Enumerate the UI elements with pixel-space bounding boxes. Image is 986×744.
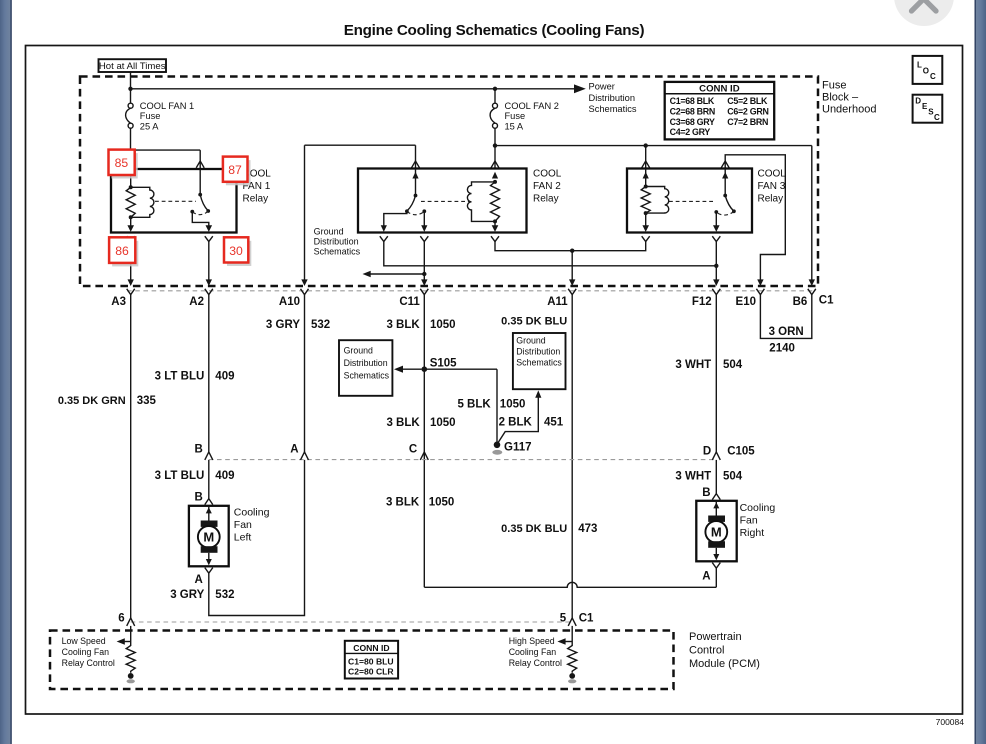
svg-text:5 BLK: 5 BLK bbox=[457, 399, 491, 411]
svg-text:Distribution: Distribution bbox=[589, 93, 636, 103]
svg-text:409: 409 bbox=[215, 470, 234, 482]
svg-text:2 BLK: 2 BLK bbox=[499, 417, 533, 429]
svg-text:C1=80 BLU: C1=80 BLU bbox=[348, 656, 394, 666]
svg-text:3 BLK: 3 BLK bbox=[386, 417, 420, 429]
svg-text:Left: Left bbox=[234, 532, 252, 544]
svg-text:FAN 3: FAN 3 bbox=[758, 181, 786, 192]
svg-text:Ground: Ground bbox=[516, 336, 545, 346]
svg-text:C1: C1 bbox=[579, 613, 594, 625]
svg-text:Fan: Fan bbox=[740, 515, 758, 527]
svg-text:532: 532 bbox=[215, 589, 234, 601]
svg-text:Hot at All Times: Hot at All Times bbox=[99, 61, 166, 72]
svg-text:1050: 1050 bbox=[430, 319, 456, 331]
svg-text:85: 85 bbox=[115, 156, 129, 170]
svg-text:409: 409 bbox=[215, 371, 234, 383]
svg-text:A10: A10 bbox=[279, 296, 300, 308]
svg-text:Cooling: Cooling bbox=[740, 502, 776, 514]
svg-text:A: A bbox=[290, 444, 298, 456]
svg-text:B: B bbox=[194, 444, 202, 456]
svg-text:30: 30 bbox=[229, 244, 243, 258]
svg-text:A3: A3 bbox=[111, 296, 126, 308]
svg-text:Relay Control: Relay Control bbox=[62, 658, 115, 668]
svg-text:3 WHT: 3 WHT bbox=[675, 471, 711, 483]
svg-text:FAN 2: FAN 2 bbox=[533, 181, 561, 192]
svg-text:15 A: 15 A bbox=[505, 121, 524, 131]
svg-text:Fuse: Fuse bbox=[822, 80, 846, 92]
svg-text:Low Speed: Low Speed bbox=[62, 636, 106, 646]
svg-text:Engine Cooling Schematics (Coo: Engine Cooling Schematics (Cooling Fans) bbox=[344, 22, 645, 39]
svg-text:M: M bbox=[203, 530, 214, 545]
svg-text:O: O bbox=[923, 66, 929, 75]
svg-text:25 A: 25 A bbox=[140, 121, 159, 131]
svg-text:Schematics: Schematics bbox=[516, 358, 562, 368]
svg-text:L: L bbox=[917, 61, 922, 70]
svg-text:C2=68 BRN: C2=68 BRN bbox=[670, 107, 715, 117]
svg-text:Fan: Fan bbox=[234, 519, 252, 531]
svg-text:Fuse: Fuse bbox=[140, 111, 161, 121]
svg-text:Cooling Fan: Cooling Fan bbox=[509, 647, 557, 657]
svg-text:COOL: COOL bbox=[533, 169, 562, 180]
svg-text:C3=68 GRY: C3=68 GRY bbox=[670, 117, 715, 127]
svg-text:D: D bbox=[703, 446, 711, 458]
svg-text:C: C bbox=[934, 113, 940, 122]
svg-text:700084: 700084 bbox=[936, 717, 965, 727]
svg-text:C105: C105 bbox=[727, 446, 755, 458]
svg-text:504: 504 bbox=[723, 359, 743, 371]
svg-text:3 GRY: 3 GRY bbox=[266, 319, 300, 331]
svg-text:D: D bbox=[915, 97, 921, 106]
svg-text:0.35 DK BLU: 0.35 DK BLU bbox=[501, 316, 567, 328]
svg-text:Relay: Relay bbox=[758, 194, 784, 205]
svg-text:C7=2 BRN: C7=2 BRN bbox=[727, 117, 768, 127]
svg-text:Relay: Relay bbox=[243, 194, 269, 205]
svg-text:E10: E10 bbox=[736, 296, 756, 308]
svg-text:Relay: Relay bbox=[533, 194, 559, 205]
svg-text:C11: C11 bbox=[399, 296, 420, 308]
svg-text:A: A bbox=[702, 571, 710, 583]
svg-text:COOL: COOL bbox=[758, 169, 787, 180]
svg-text:3 GRY: 3 GRY bbox=[170, 589, 204, 601]
svg-text:504: 504 bbox=[723, 471, 743, 483]
svg-text:87: 87 bbox=[228, 163, 242, 177]
svg-text:M: M bbox=[711, 525, 722, 540]
svg-text:G117: G117 bbox=[504, 442, 532, 454]
svg-text:Underhood: Underhood bbox=[822, 104, 876, 116]
svg-text:C: C bbox=[409, 444, 417, 456]
svg-text:Distribution: Distribution bbox=[516, 347, 560, 357]
svg-text:Cooling: Cooling bbox=[234, 507, 270, 519]
svg-text:A: A bbox=[194, 574, 202, 586]
svg-text:C6=2 GRN: C6=2 GRN bbox=[727, 107, 768, 117]
svg-text:C2=80 CLR: C2=80 CLR bbox=[348, 667, 394, 677]
svg-text:A11: A11 bbox=[547, 296, 568, 308]
svg-text:1050: 1050 bbox=[429, 497, 455, 509]
svg-text:Fuse: Fuse bbox=[505, 111, 526, 121]
svg-text:C1: C1 bbox=[819, 295, 834, 307]
svg-text:C5=2 BLK: C5=2 BLK bbox=[727, 96, 768, 106]
svg-text:86: 86 bbox=[115, 244, 129, 258]
svg-text:335: 335 bbox=[137, 395, 157, 407]
svg-text:Schematics: Schematics bbox=[344, 371, 390, 381]
svg-text:CONN ID: CONN ID bbox=[353, 643, 389, 653]
svg-text:B6: B6 bbox=[793, 296, 808, 308]
svg-text:Module (PCM): Module (PCM) bbox=[689, 658, 760, 670]
svg-text:3 WHT: 3 WHT bbox=[675, 359, 711, 371]
svg-text:B: B bbox=[194, 492, 202, 504]
svg-text:Schematics: Schematics bbox=[589, 104, 637, 114]
svg-text:B: B bbox=[702, 487, 710, 499]
svg-text:High Speed: High Speed bbox=[509, 636, 555, 646]
svg-text:A2: A2 bbox=[189, 296, 204, 308]
svg-text:0.35 DK BLU: 0.35 DK BLU bbox=[501, 523, 567, 535]
svg-text:COOL FAN 2: COOL FAN 2 bbox=[505, 101, 559, 111]
svg-text:1050: 1050 bbox=[430, 417, 456, 429]
svg-text:Ground: Ground bbox=[344, 346, 373, 356]
svg-text:Right: Right bbox=[740, 527, 765, 539]
svg-text:C: C bbox=[930, 72, 936, 81]
svg-text:Relay Control: Relay Control bbox=[509, 658, 562, 668]
svg-text:C4=2 GRY: C4=2 GRY bbox=[670, 127, 711, 137]
svg-text:C1=68 BLK: C1=68 BLK bbox=[670, 96, 715, 106]
svg-text:5: 5 bbox=[560, 613, 567, 625]
svg-text:1050: 1050 bbox=[500, 399, 526, 411]
svg-text:0.35 DK GRN: 0.35 DK GRN bbox=[58, 395, 126, 407]
svg-text:Schematics: Schematics bbox=[314, 247, 361, 257]
svg-text:F12: F12 bbox=[692, 296, 712, 308]
svg-text:3 BLK: 3 BLK bbox=[386, 497, 420, 509]
svg-text:Distribution: Distribution bbox=[344, 358, 388, 368]
svg-text:Ground: Ground bbox=[314, 227, 344, 237]
svg-text:473: 473 bbox=[578, 523, 597, 535]
svg-text:3 BLK: 3 BLK bbox=[386, 319, 420, 331]
svg-text:2140: 2140 bbox=[769, 343, 795, 355]
svg-text:451: 451 bbox=[544, 417, 564, 429]
svg-text:Cooling Fan: Cooling Fan bbox=[62, 647, 110, 657]
svg-text:S105: S105 bbox=[430, 358, 457, 370]
svg-text:Control: Control bbox=[689, 644, 724, 656]
svg-text:3 LT BLU: 3 LT BLU bbox=[155, 470, 205, 482]
svg-text:Power: Power bbox=[589, 82, 615, 92]
svg-text:Powertrain: Powertrain bbox=[689, 631, 742, 643]
svg-text:E: E bbox=[922, 102, 928, 111]
svg-text:Block –: Block – bbox=[822, 92, 859, 104]
svg-text:Distribution: Distribution bbox=[314, 237, 359, 247]
svg-text:3 LT BLU: 3 LT BLU bbox=[155, 371, 205, 383]
svg-text:COOL FAN 1: COOL FAN 1 bbox=[140, 101, 194, 111]
svg-text:532: 532 bbox=[311, 319, 330, 331]
svg-text:3 ORN: 3 ORN bbox=[769, 326, 804, 338]
svg-text:6: 6 bbox=[118, 613, 124, 625]
svg-text:CONN ID: CONN ID bbox=[699, 84, 740, 95]
